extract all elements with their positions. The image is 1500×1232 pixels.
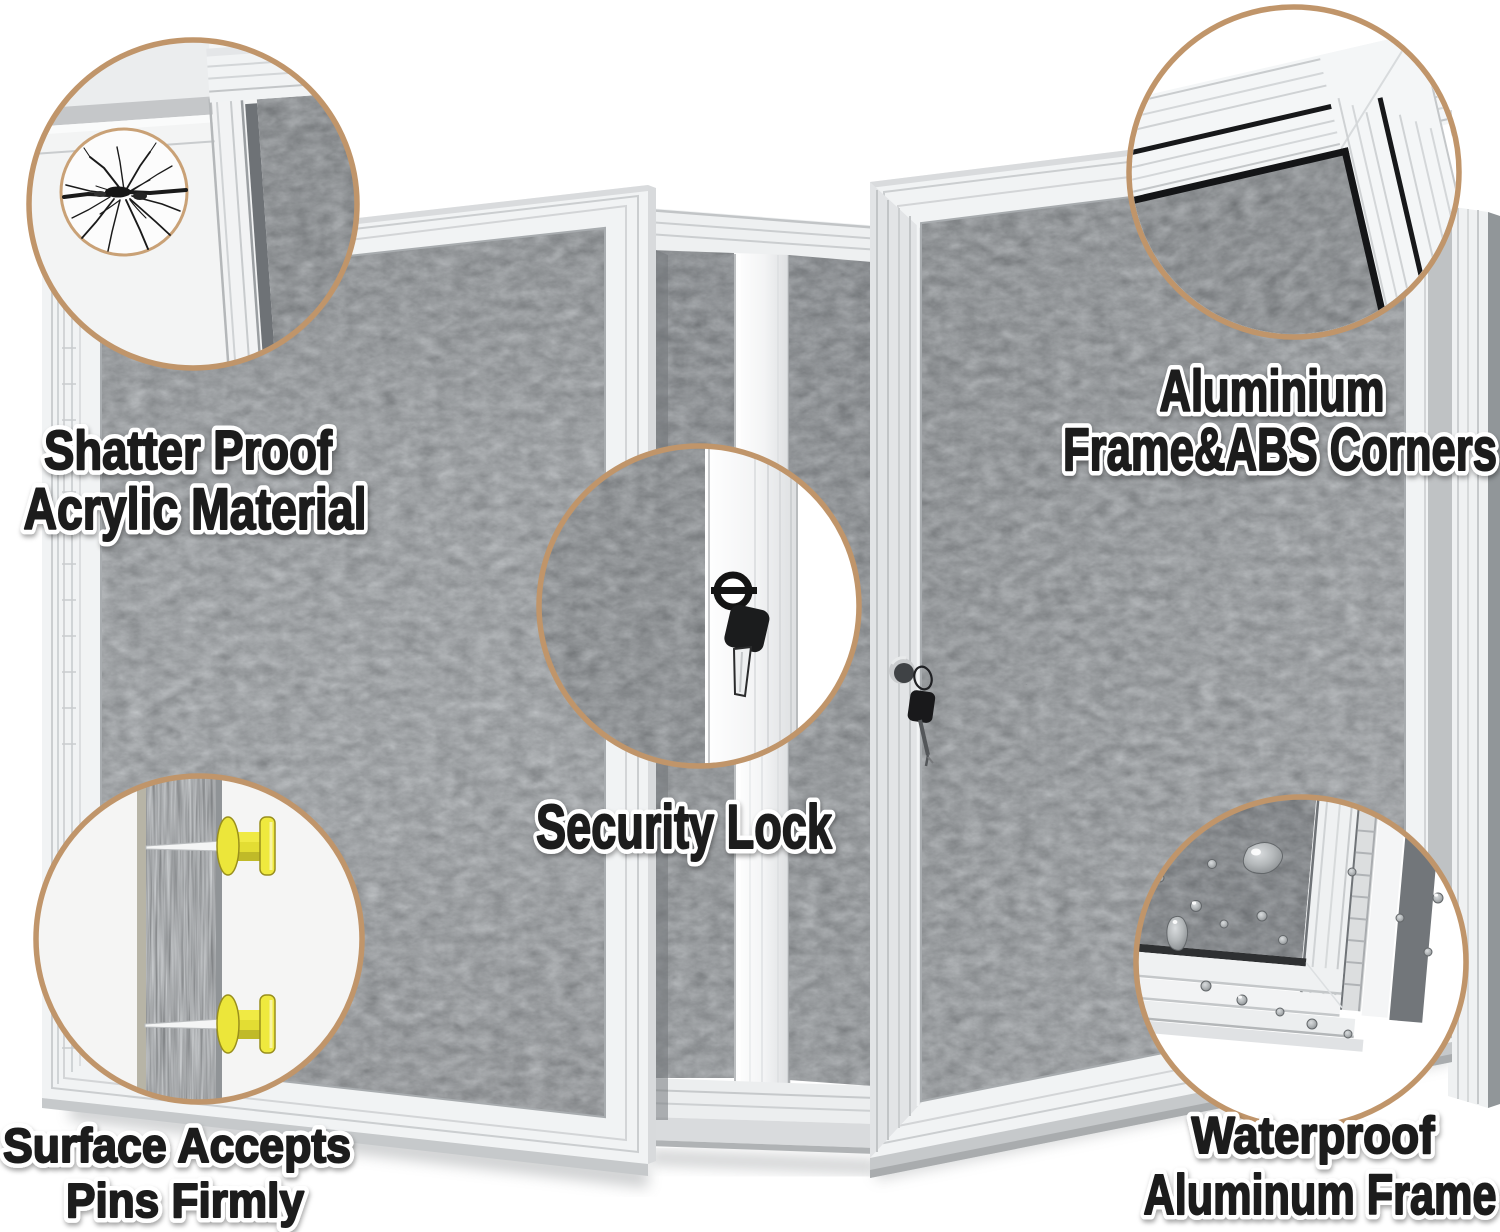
- svg-text:Aluminium: Aluminium: [1160, 359, 1385, 424]
- svg-text:Waterproof: Waterproof: [1192, 1106, 1436, 1164]
- svg-text:Frame&ABS Corners: Frame&ABS Corners: [1063, 416, 1497, 483]
- svg-text:Pins Firmly: Pins Firmly: [66, 1174, 304, 1228]
- svg-text:Shatter Proof: Shatter Proof: [44, 420, 333, 481]
- svg-text:Aluminum Frame: Aluminum Frame: [1144, 1163, 1497, 1227]
- svg-text:Acrylic Material: Acrylic Material: [24, 477, 367, 542]
- svg-text:Surface Accepts: Surface Accepts: [3, 1120, 351, 1173]
- svg-text:Security Lock: Security Lock: [536, 793, 832, 862]
